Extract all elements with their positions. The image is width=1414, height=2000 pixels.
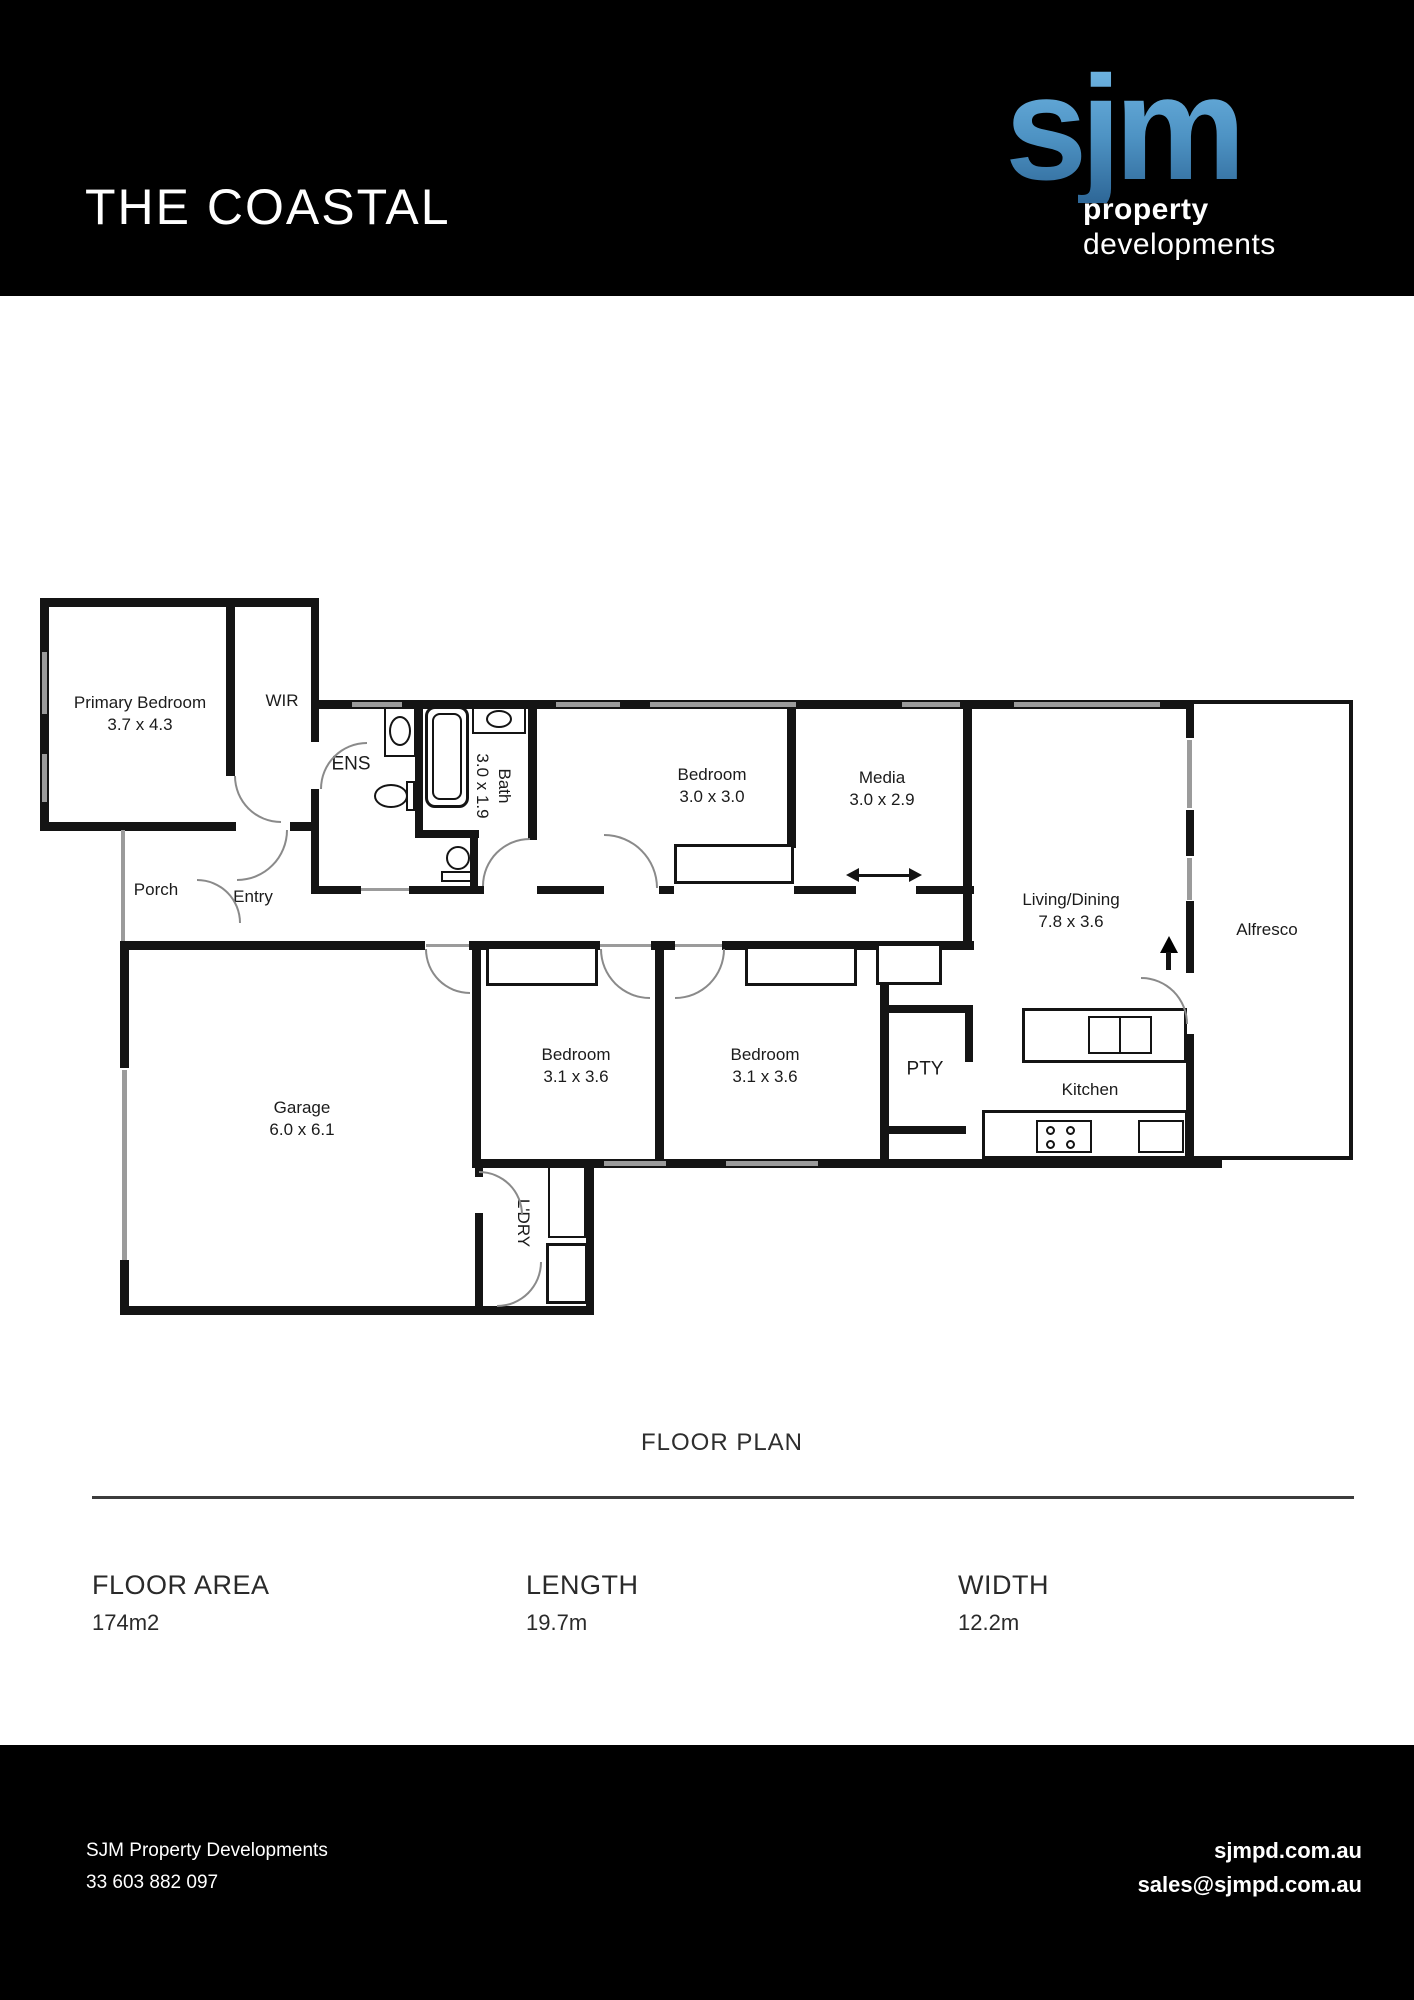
linen-closet (546, 1243, 588, 1304)
room-name: Garage (269, 1097, 334, 1119)
wall-segment (120, 1306, 594, 1315)
door-arc (320, 742, 367, 789)
room-dims: 3.0 x 3.0 (678, 786, 747, 808)
plan-caption: FLOOR PLAN (641, 1429, 803, 1457)
wall-segment (470, 838, 478, 888)
wall-segment (226, 598, 235, 776)
room-label-bedroom3: Bedroom 3.0 x 3.0 (678, 764, 747, 808)
wall-segment (963, 886, 972, 945)
spec-label-width: WIDTH (958, 1570, 1049, 1601)
wall-segment (1186, 810, 1194, 856)
wall-segment (965, 1005, 973, 1062)
wall-segment (415, 709, 423, 838)
door-arc (237, 830, 288, 881)
room-label-living-dining: Living/Dining 7.8 x 3.6 (1022, 889, 1119, 933)
room-name: Bedroom (731, 1044, 800, 1066)
divider-line (92, 1496, 1354, 1499)
window-segment (121, 830, 125, 941)
door-arc (675, 949, 725, 999)
robe-closet (674, 844, 794, 884)
room-dims: 3.1 x 3.6 (542, 1066, 611, 1088)
cooktop-burner (1046, 1140, 1055, 1149)
room-label-entry: Entry (233, 886, 273, 908)
room-name: Media (849, 767, 914, 789)
room-label-porch: Porch (134, 879, 178, 901)
room-label-pty: PTY (907, 1058, 944, 1083)
wall-segment (963, 709, 972, 888)
footer-band: SJM Property Developments 33 603 882 097… (0, 1745, 1414, 2000)
wall-segment (659, 886, 674, 894)
ensuite-basin (389, 716, 411, 746)
room-dims: 6.0 x 6.1 (269, 1119, 334, 1141)
room-dims: 3.7 x 4.3 (74, 714, 206, 736)
room-label-alfresco: Alfresco (1236, 919, 1297, 941)
spec-value-length: 19.7m (526, 1610, 587, 1636)
wall-segment (409, 886, 484, 894)
wall-segment (472, 941, 481, 1168)
north-arrow-stem (1166, 952, 1171, 970)
spec-value-floor-area: 174m2 (92, 1610, 159, 1636)
window-segment (556, 702, 620, 707)
spec-label-length: LENGTH (526, 1570, 639, 1601)
wall-segment (916, 886, 974, 894)
wall-segment (787, 709, 796, 848)
wall-segment (537, 886, 604, 894)
spec-label-floor-area: FLOOR AREA (92, 1570, 270, 1601)
wall-segment (311, 709, 319, 742)
footer-company: SJM Property Developments (86, 1840, 328, 1862)
wall-segment (1186, 901, 1194, 973)
window-segment (42, 754, 47, 802)
room-label-bath: Bath 3.0 x 1.9 (471, 753, 515, 818)
wall-segment (888, 1005, 972, 1013)
cooktop-burner (1066, 1140, 1075, 1149)
window-segment (352, 702, 402, 707)
room-label-garage: Garage 6.0 x 6.1 (269, 1097, 334, 1141)
window-segment (122, 1070, 127, 1260)
wall-segment (40, 598, 319, 607)
linen-closet (876, 943, 942, 985)
window-segment (600, 944, 651, 947)
room-name: Bedroom (542, 1044, 611, 1066)
wall-segment (1349, 700, 1353, 1160)
window-segment (675, 944, 722, 947)
sliding-door-arrow-icon (858, 874, 910, 877)
window-segment (726, 1161, 818, 1166)
cooktop-burner (1046, 1126, 1055, 1135)
wall-segment (40, 822, 236, 831)
window-segment (426, 944, 469, 947)
kitchen-sink-divider (1119, 1018, 1121, 1052)
window-segment (604, 1161, 666, 1166)
bath-basin (486, 710, 512, 728)
wall-segment (794, 886, 856, 894)
ensuite-toilet (374, 784, 408, 808)
room-name: Bath (493, 753, 515, 818)
oven (1138, 1120, 1184, 1153)
wall-segment (311, 789, 319, 888)
room-name: Living/Dining (1022, 889, 1119, 911)
door-arc (479, 1171, 523, 1215)
room-name: Primary Bedroom (74, 692, 206, 714)
room-label-primary-bedroom: Primary Bedroom 3.7 x 4.3 (74, 692, 206, 736)
window-segment (361, 888, 409, 891)
room-label-kitchen: Kitchen (1062, 1079, 1119, 1101)
wall-segment (415, 830, 479, 838)
footer-email: sales@sjmpd.com.au (1138, 1872, 1362, 1898)
door-arc (497, 1262, 542, 1307)
wall-segment (475, 1213, 483, 1310)
room-dims: 3.0 x 2.9 (849, 789, 914, 811)
wall-segment (1188, 1156, 1353, 1160)
spec-value-width: 12.2m (958, 1610, 1019, 1636)
room-dims: 3.1 x 3.6 (731, 1066, 800, 1088)
room-dims: 7.8 x 3.6 (1022, 911, 1119, 933)
cooktop-burner (1066, 1126, 1075, 1135)
door-arc (425, 949, 470, 994)
door-arc (1141, 977, 1188, 1024)
arrow-right-icon (909, 868, 922, 882)
room-label-bedroom-right: Bedroom 3.1 x 3.6 (731, 1044, 800, 1088)
door-arc (234, 776, 281, 823)
wall-segment (311, 598, 319, 709)
wall-segment (1186, 700, 1194, 738)
wall-segment (655, 941, 664, 1168)
door-arc (600, 949, 650, 999)
north-arrow-icon (1160, 936, 1178, 953)
wall-segment (1186, 1034, 1194, 1167)
wall-segment (1193, 700, 1353, 704)
wall-segment (888, 1126, 966, 1134)
floor-plan-drawing: Primary Bedroom 3.7 x 4.3 WIR ENS Bath 3… (0, 0, 1414, 2000)
ensuite-toilet-tank (406, 781, 415, 811)
cupboard (548, 1166, 586, 1238)
cooktop (1036, 1120, 1092, 1153)
bathtub-inner (432, 713, 462, 800)
window-segment (650, 702, 796, 707)
door-arc (604, 834, 658, 888)
wall-segment (528, 709, 537, 840)
wall-segment (120, 941, 425, 950)
brochure-page: THE COASTAL sjm property developments (0, 0, 1414, 2000)
room-label-wir: WIR (265, 690, 298, 712)
window-segment (1187, 740, 1192, 808)
room-label-media: Media 3.0 x 2.9 (849, 767, 914, 811)
room-name: Bedroom (678, 764, 747, 786)
wc-toilet (446, 846, 470, 870)
wall-segment (120, 941, 129, 1068)
window-segment (902, 702, 960, 707)
room-label-bedroom-left: Bedroom 3.1 x 3.6 (542, 1044, 611, 1088)
footer-phone: 33 603 882 097 (86, 1872, 218, 1894)
robe-closet (486, 946, 598, 986)
window-segment (1187, 858, 1192, 900)
door-arc (482, 838, 530, 886)
room-dims: 3.0 x 1.9 (471, 753, 493, 818)
window-segment (42, 652, 47, 714)
footer-website: sjmpd.com.au (1214, 1838, 1362, 1864)
arrow-left-icon (846, 868, 859, 882)
robe-closet (745, 946, 857, 986)
wall-segment (311, 886, 361, 894)
window-segment (1014, 702, 1160, 707)
